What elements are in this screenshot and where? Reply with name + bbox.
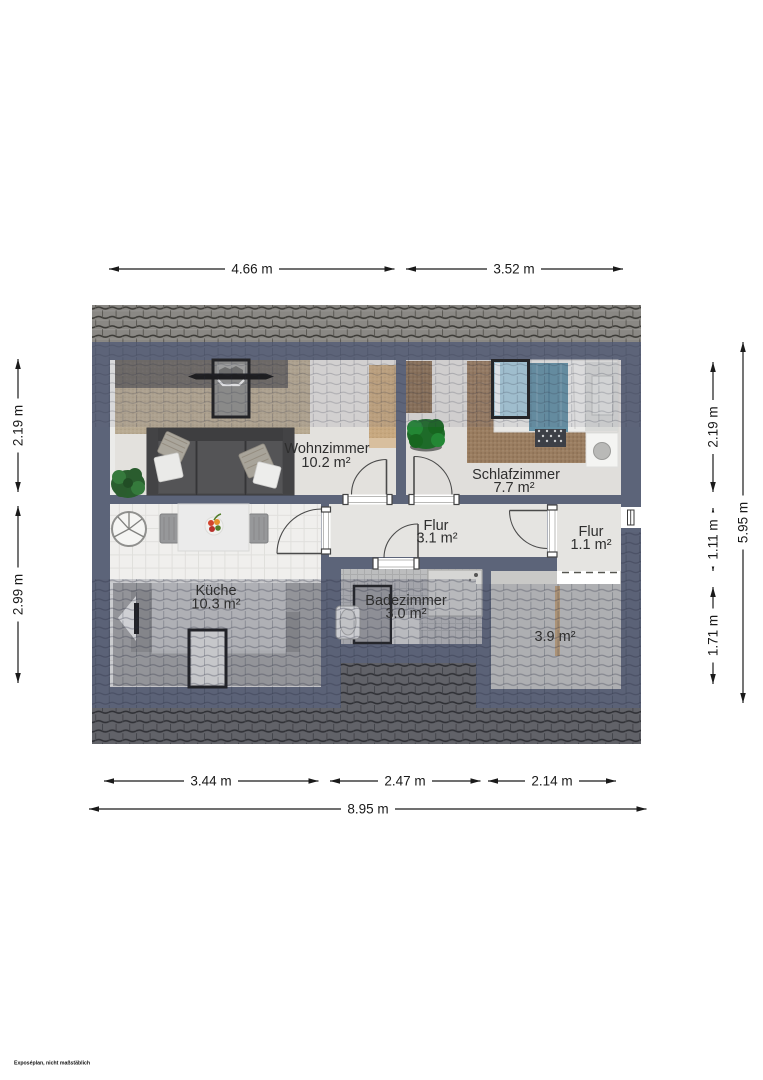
svg-text:4.66 m: 4.66 m [231, 262, 272, 277]
svg-text:7.7 m²: 7.7 m² [493, 480, 534, 496]
svg-text:3.52 m: 3.52 m [493, 262, 534, 277]
svg-text:3.0 m²: 3.0 m² [385, 606, 426, 622]
svg-text:2.19 m: 2.19 m [11, 405, 26, 446]
svg-text:1.1 m²: 1.1 m² [570, 537, 611, 553]
svg-text:5.95 m: 5.95 m [736, 502, 751, 543]
svg-text:1.71 m: 1.71 m [706, 615, 721, 656]
svg-text:1.11 m: 1.11 m [706, 519, 721, 559]
svg-text:2.19 m: 2.19 m [706, 406, 721, 447]
svg-text:Exposéplan, nicht maßstäblich: Exposéplan, nicht maßstäblich [14, 1061, 90, 1067]
svg-text:2.47 m: 2.47 m [384, 774, 425, 789]
svg-text:10.3 m²: 10.3 m² [191, 597, 240, 613]
svg-text:10.2 m²: 10.2 m² [301, 455, 350, 471]
svg-text:2.14 m: 2.14 m [531, 774, 572, 789]
svg-text:8.95 m: 8.95 m [347, 802, 388, 817]
svg-text:2.99 m: 2.99 m [11, 574, 26, 615]
svg-text:3.44 m: 3.44 m [190, 774, 231, 789]
svg-text:3.1 m²: 3.1 m² [416, 531, 457, 547]
svg-text:3.9 m²: 3.9 m² [534, 629, 575, 645]
